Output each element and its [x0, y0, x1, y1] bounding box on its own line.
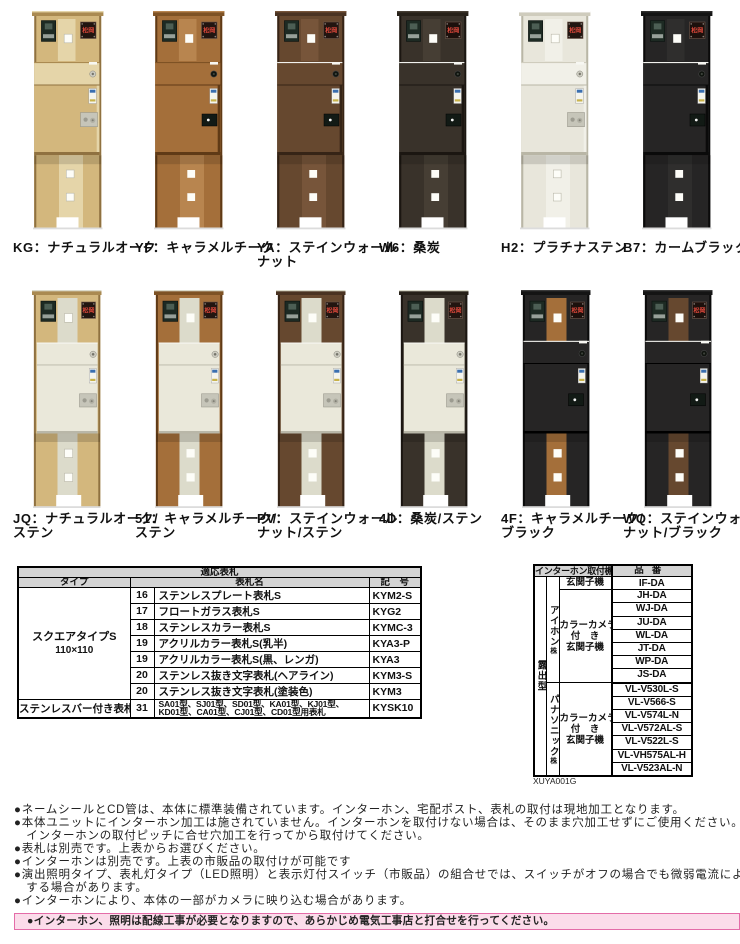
svg-text:松岡: 松岡	[569, 26, 581, 34]
svg-text:松岡: 松岡	[325, 26, 337, 34]
svg-text:松岡: 松岡	[82, 306, 94, 314]
svg-text:松岡: 松岡	[691, 26, 703, 34]
svg-text:松岡: 松岡	[449, 306, 461, 314]
svg-text:松岡: 松岡	[205, 306, 217, 314]
svg-text:松岡: 松岡	[447, 26, 459, 34]
svg-text:松岡: 松岡	[82, 26, 94, 34]
svg-text:松岡: 松岡	[571, 306, 583, 314]
svg-text:松岡: 松岡	[693, 306, 705, 314]
svg-text:松岡: 松岡	[327, 306, 339, 314]
svg-text:松岡: 松岡	[203, 26, 215, 34]
